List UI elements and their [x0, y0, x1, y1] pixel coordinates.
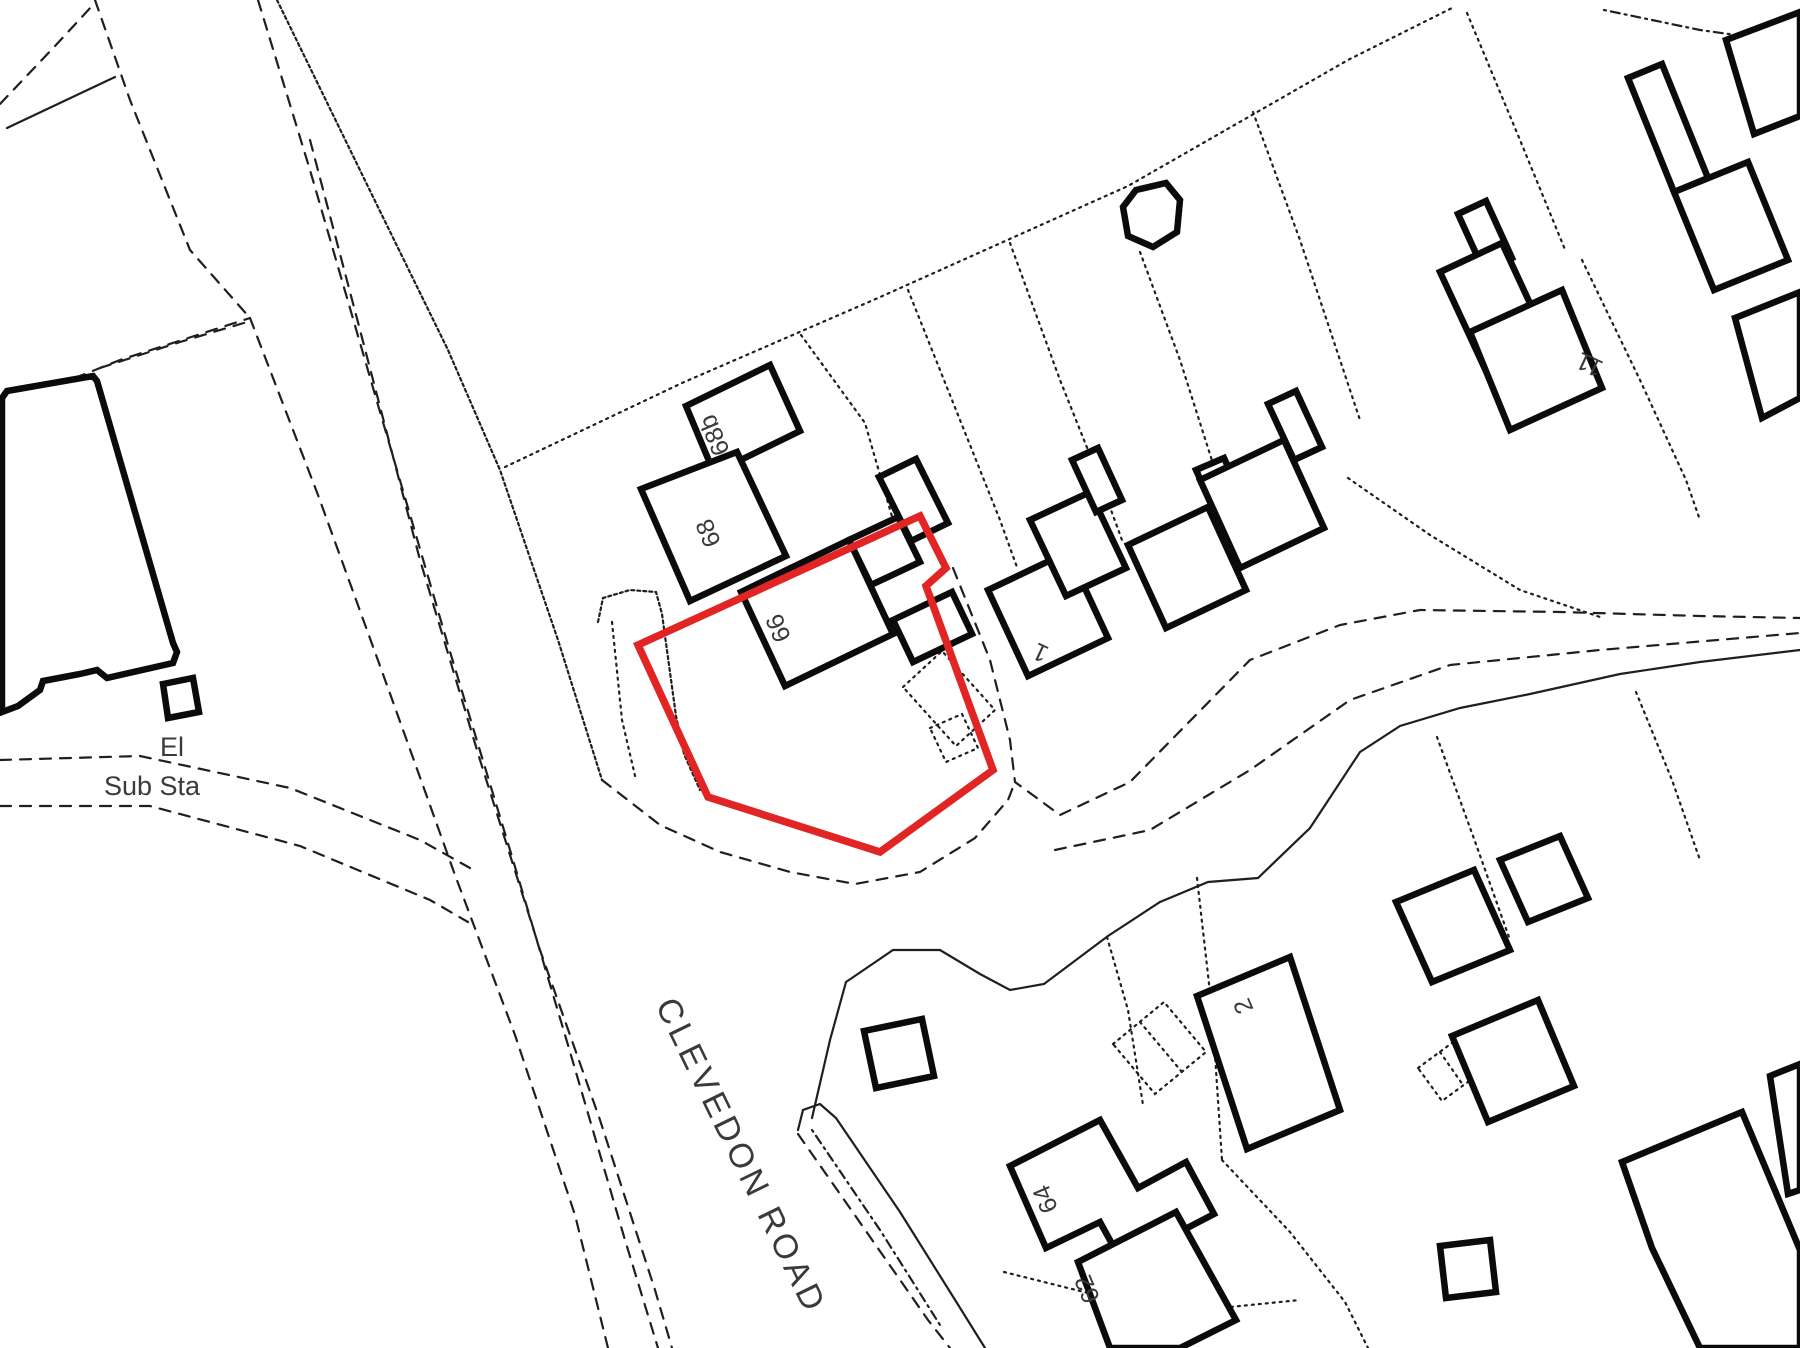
verge-strip-inner [612, 622, 636, 780]
building-2 [1197, 957, 1340, 1149]
footway-strip-east-edge [798, 1104, 985, 1348]
map-canvas: 68b686611126462ElSub StaCLEVEDON ROAD [0, 0, 1800, 1348]
building-ne-4 [1735, 292, 1800, 418]
parcel-division-se-2 [1636, 692, 1700, 860]
building-se-5 [1396, 870, 1510, 982]
parcel-substation-south-b [0, 806, 468, 922]
building-ne-1 [1628, 64, 1708, 192]
building-se-3 [1770, 1064, 1800, 1194]
label-sub-sta: Sub Sta [104, 771, 201, 801]
road-east-centre-line [1055, 633, 1800, 850]
building-pond-octagon [1123, 183, 1180, 247]
building-substation [2, 376, 177, 712]
parcel-substation-south-a [0, 756, 470, 868]
parcel-division-1 [801, 335, 893, 520]
building-substation-hut [163, 678, 199, 718]
building-se-2 [1622, 1112, 1800, 1348]
outbuilding-dashed-court-1 [1113, 1002, 1206, 1094]
buildings-layer [2, 12, 1800, 1348]
outbuilding-dashed-site-se-2 [930, 714, 978, 762]
label-clevedon-road: CLEVEDON ROAD [648, 992, 834, 1320]
parcel-substation-north-b [100, 322, 247, 368]
road-clevedon-west-outer-upper [95, 0, 250, 318]
site-plan-page: 68b686611126462ElSub StaCLEVEDON ROAD [0, 0, 1800, 1348]
footway-strip-west-edge [798, 1134, 950, 1348]
label-el: El [160, 732, 184, 762]
outbuilding-court-1-division [1140, 1022, 1182, 1072]
parcel-frontage-11-row [1348, 478, 1600, 617]
labels-layer: 68b686611126462ElSub StaCLEVEDON ROAD [104, 346, 1607, 1320]
parcel-nw-block-boundary [505, 8, 1452, 467]
building-ne-3 [1726, 12, 1800, 134]
parcel-substation-nw-line [7, 77, 115, 128]
building-garage [864, 1019, 934, 1088]
road-clevedon-west-edge [258, 0, 658, 1348]
building-62 [1078, 1212, 1236, 1348]
road-clevedon-east-edge [277, 0, 602, 780]
parcel-and-road-lines [0, 0, 1800, 1348]
building-se-4 [1440, 1240, 1496, 1298]
parcel-boundary-plot2-south [1222, 1160, 1368, 1348]
building-se-1 [1452, 1000, 1574, 1122]
building-se-6 [1500, 836, 1588, 922]
parcel-division-garage-court [1107, 937, 1143, 1105]
parcel-division-5 [1253, 112, 1360, 420]
parcel-top-left-corner [0, 6, 92, 104]
road-clevedon-centre-line [310, 140, 672, 1348]
road-clevedon-west-outer-lower [250, 318, 608, 1348]
